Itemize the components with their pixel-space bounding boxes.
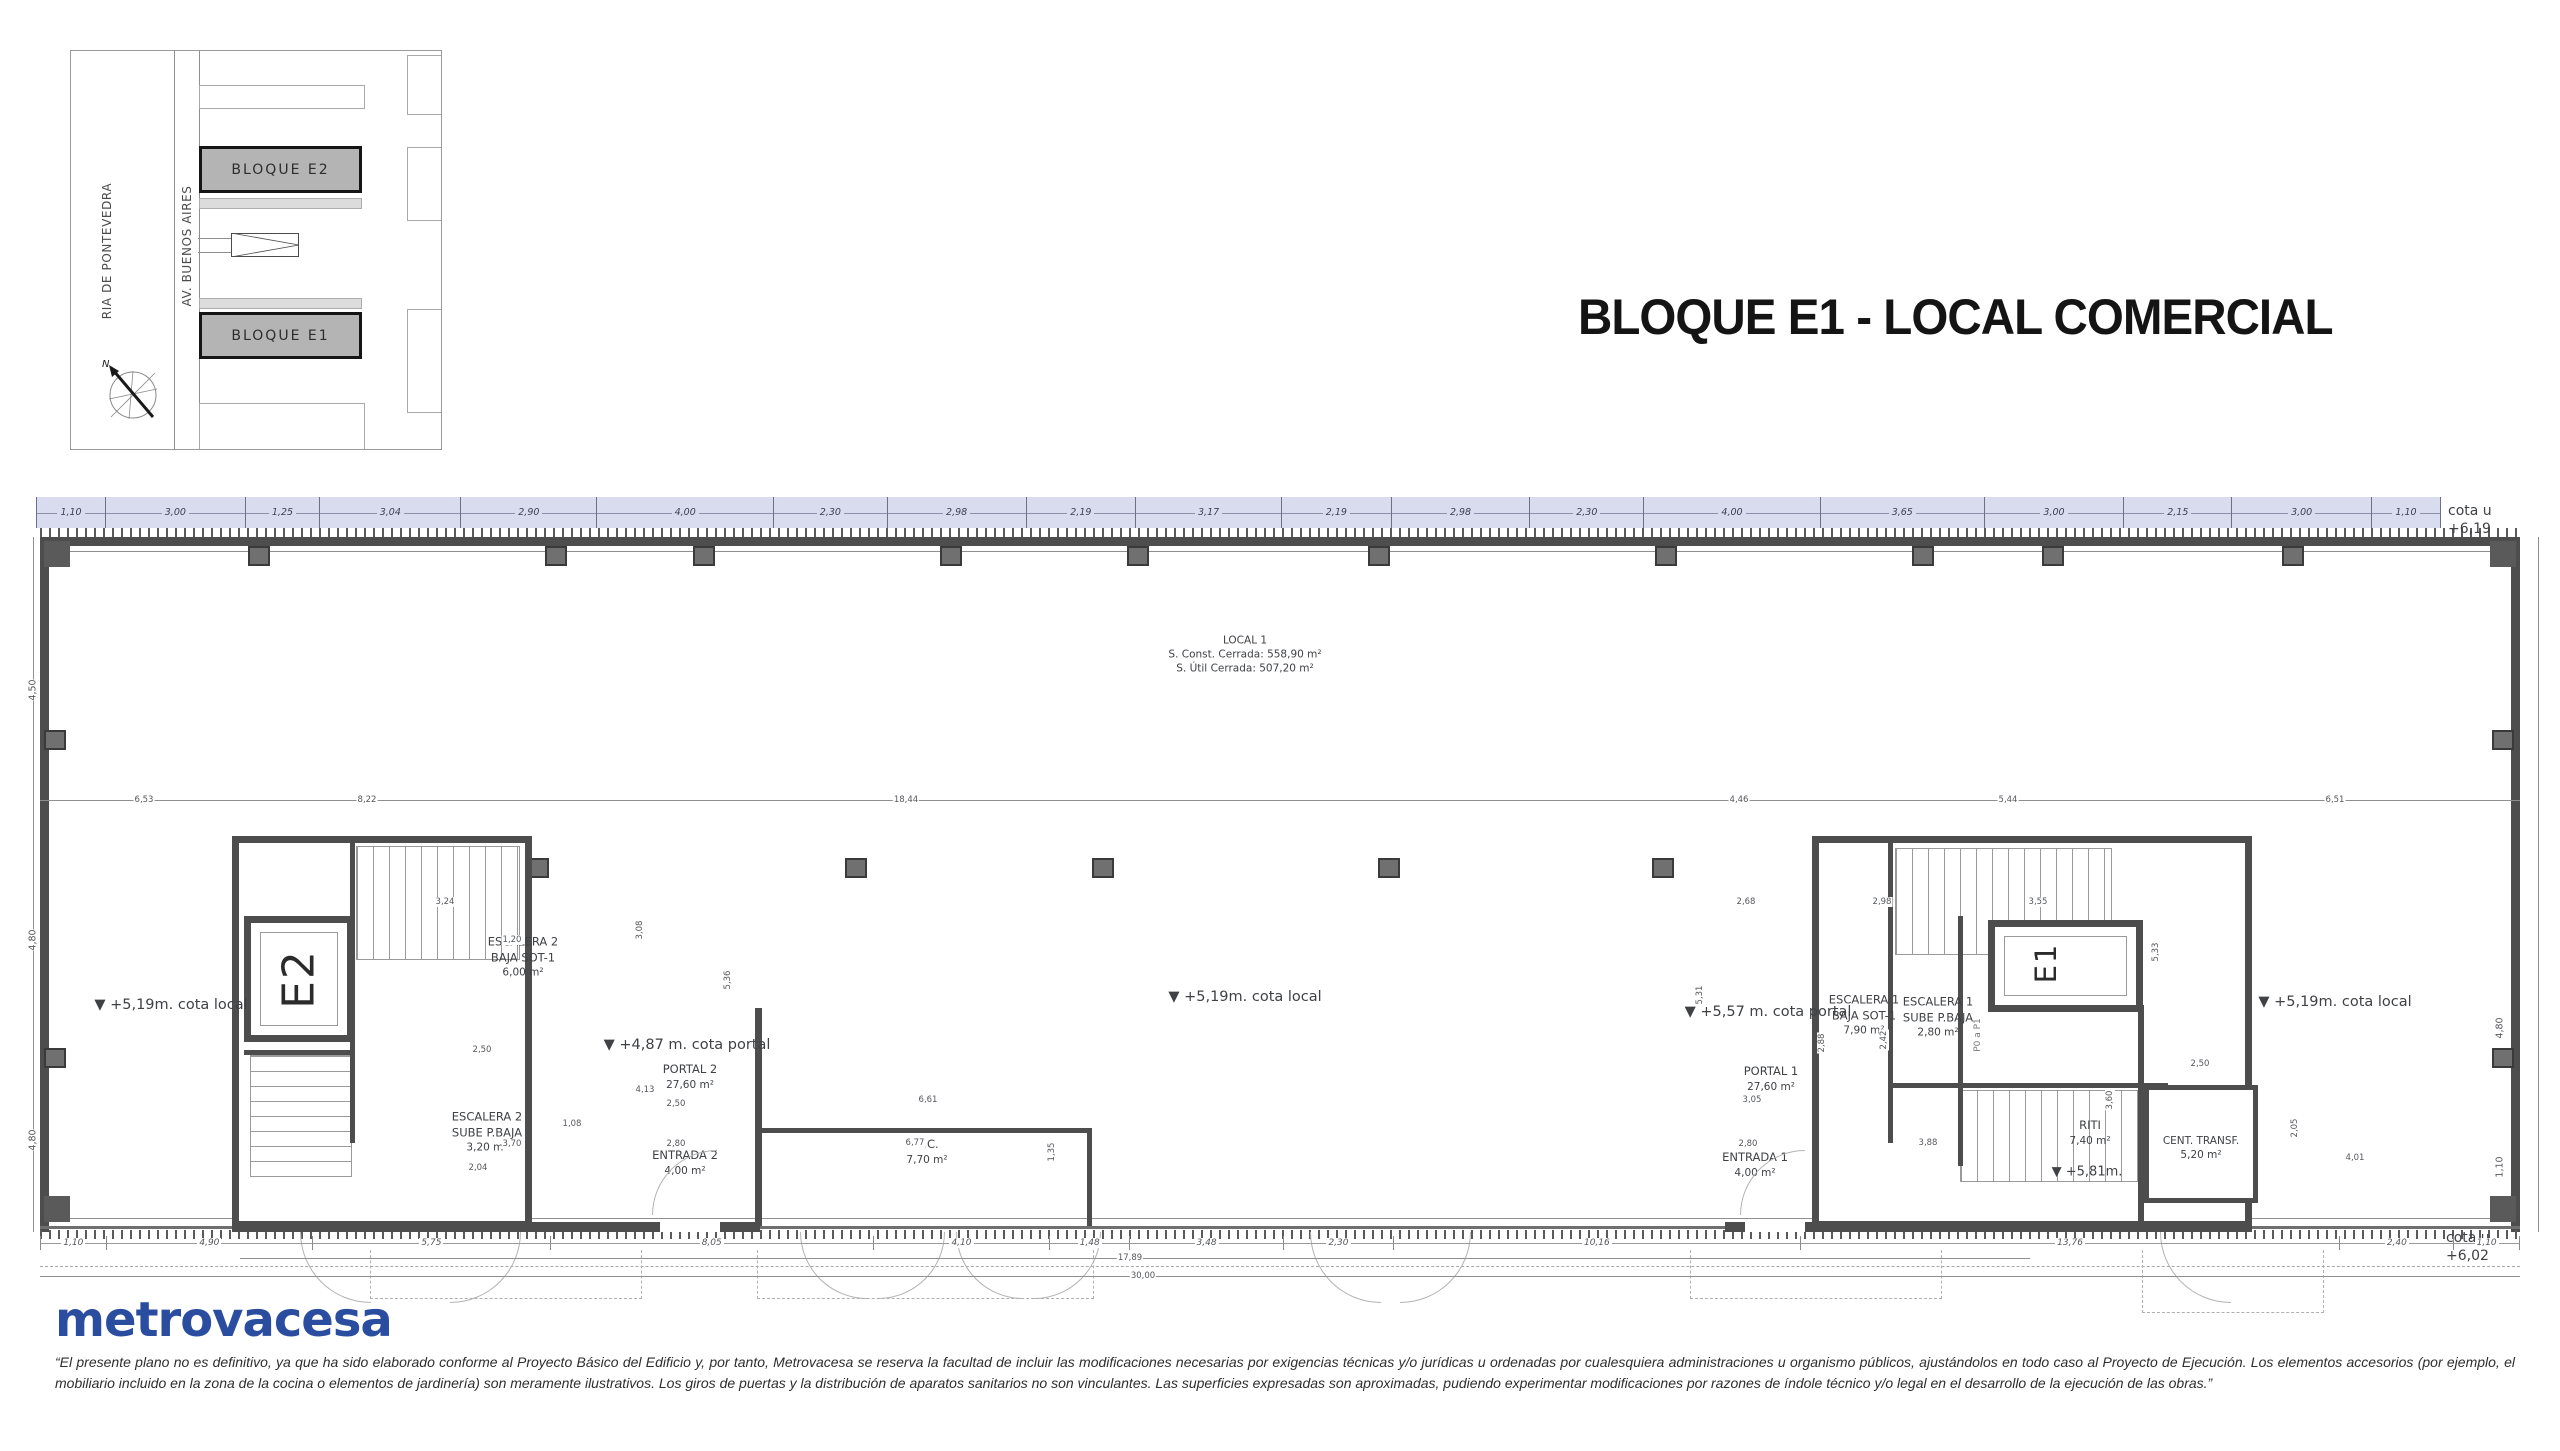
dimension-label: 2,30	[1573, 507, 1600, 518]
dimension-label: 5,44	[1998, 795, 2019, 805]
dimension-label: 2,98	[1447, 507, 1474, 518]
dimension-label: 2,88	[1817, 1033, 1827, 1054]
column	[44, 1196, 70, 1222]
dimension-label: 3,88	[1918, 1138, 1939, 1148]
neighbor-building	[199, 403, 365, 450]
cota-riti: ▼ +5,81m.	[2052, 1165, 2123, 1180]
dimension-label: 6,53	[134, 795, 155, 805]
local-1-label: LOCAL 1 S. Const. Cerrada: 558,90 m² S. …	[1168, 634, 1321, 677]
street-label-buenos-aires: AV. BUENOS AIRES	[180, 185, 194, 306]
column	[2492, 1048, 2514, 1068]
dimension-label: 2,42	[1879, 1030, 1889, 1051]
wall-segment	[244, 1050, 352, 1055]
top-dimension-band: 1,10 3,00 1,25 3,04 2,90 4,00 2,30 2,98 …	[36, 497, 2441, 528]
column	[545, 546, 567, 566]
dimension-label: 6,51	[2325, 795, 2346, 805]
cota-local-center: ▼ +5,19m. cota local	[1168, 989, 1321, 1005]
dimension-label: 13,76	[2055, 1238, 2085, 1248]
dimension-label: 8,05	[700, 1238, 724, 1248]
room-label-escalera1-sube: ESCALERA 1 SUBE P.BAJA 2,80 m²	[1903, 994, 1974, 1039]
stair-note: P0 a P1	[1973, 1018, 1983, 1052]
compass-icon: N	[99, 357, 161, 423]
elevator-car	[2004, 936, 2127, 996]
dimension-label: 10,16	[1582, 1238, 1612, 1248]
dimension-label: 4,00	[672, 507, 699, 518]
dimension-label: 4,80	[28, 1129, 39, 1150]
wall-segment	[40, 537, 2520, 546]
dimension-label: 2,30	[817, 507, 844, 518]
dimension-label: 2,50	[666, 1099, 687, 1109]
dimension-label: 17,89	[1117, 1253, 1143, 1263]
dimension-label: 1,08	[562, 1119, 583, 1129]
dimension-label: 6,61	[918, 1095, 939, 1105]
dimension-label: 2,80	[666, 1139, 687, 1149]
column	[44, 730, 66, 750]
dimension-label: 2,15	[2164, 507, 2191, 518]
wall-hatching	[40, 528, 2520, 537]
dimension-label: 4,10	[949, 1238, 973, 1248]
elevator-1-label: E1	[2029, 943, 2063, 984]
neighbor-building	[407, 55, 442, 115]
dimension-label: 4,90	[197, 1238, 221, 1248]
dimension-label: 4,01	[2345, 1153, 2366, 1163]
elevator-shaft-1	[1988, 920, 2143, 1012]
block-strip	[199, 198, 362, 209]
dimension-label: 2,04	[468, 1163, 489, 1173]
dimension-label: 3,60	[2105, 1090, 2115, 1111]
cota-portal-2: ▼ +4,87 m. cota portal	[604, 1037, 771, 1053]
dimension-label: 3,08	[635, 920, 645, 941]
dimension-label: 8,22	[357, 795, 378, 805]
block-e1-box: BLOQUE E1	[199, 312, 362, 359]
dimension-label: 1,48	[1078, 1238, 1102, 1248]
wall-segment	[40, 537, 49, 1232]
wall-segment	[1958, 916, 1963, 1166]
cota-u-top: cota u +6,19	[2448, 503, 2492, 538]
dimension-label: 2,98	[1872, 897, 1893, 907]
dimension-label: 1,10	[2475, 1238, 2499, 1248]
leader-line	[198, 252, 231, 253]
dimension-label: 2,05	[2290, 1118, 2300, 1139]
dimension-label: 1,10	[57, 507, 84, 518]
dimension-label: 3,04	[377, 507, 404, 518]
dimension-label: 5,75	[419, 1238, 443, 1248]
dimension-line	[2538, 537, 2539, 1232]
dimension-label: 30,00	[1130, 1271, 1156, 1281]
dimension-label: 2,80	[1738, 1139, 1759, 1149]
room-label-cent-transf: CENT. TRANSF. 5,20 m²	[2163, 1134, 2239, 1162]
column	[2282, 546, 2304, 566]
cota-local-right: ▼ +5,19m. cota local	[2258, 994, 2411, 1010]
column	[845, 858, 867, 878]
column	[248, 546, 270, 566]
dimension-label: 18,44	[893, 795, 919, 805]
dimension-label: 4,13	[635, 1085, 656, 1095]
column	[1912, 546, 1934, 566]
block-strip	[199, 298, 362, 309]
column	[940, 546, 962, 566]
dimension-label: 2,50	[2190, 1059, 2211, 1069]
column	[1092, 858, 1114, 878]
column	[44, 541, 70, 567]
dimension-line	[40, 1276, 2520, 1277]
column	[1652, 858, 1674, 878]
column	[693, 546, 715, 566]
dimension-label: 2,90	[515, 507, 542, 518]
dimension-label: 1,10	[61, 1238, 85, 1248]
neighbor-building	[199, 85, 365, 109]
canopy-outline	[2142, 1250, 2324, 1313]
floor-plan-sheet: RIA DE PONTEVEDRA AV. BUENOS AIRES BLOQU…	[0, 0, 2560, 1451]
column	[1127, 546, 1149, 566]
cota-portal-1: ▼ +5,57 m. cota portal	[1685, 1004, 1852, 1020]
dimension-label: 2,50	[472, 1045, 493, 1055]
dimension-label: 3,00	[2040, 507, 2067, 518]
leader-line	[198, 238, 231, 239]
dimension-label: 1,10	[2392, 507, 2419, 518]
dimension-label: 4,46	[1729, 795, 1750, 805]
dimension-label: 3,00	[162, 507, 189, 518]
door-gap	[1745, 1222, 1805, 1232]
dimension-label: 2,30	[1326, 1238, 1350, 1248]
wall-inner-line	[48, 551, 2512, 552]
room-label-riti: RITI 7,40 m²	[2069, 1118, 2110, 1148]
bottom-dimension-row: 1,10 4,90 5,75 8,05 4,10 1,48 3,48 2,30 …	[40, 1236, 2520, 1250]
dimension-label: 5,36	[723, 970, 733, 991]
dimension-line	[33, 537, 34, 1232]
dimension-label: 4,00	[1718, 507, 1745, 518]
column	[1378, 858, 1400, 878]
dimension-label: 1,10	[2495, 1156, 2506, 1177]
dimension-label: 3,48	[1195, 1238, 1219, 1248]
dimension-label: 3,55	[2028, 897, 2049, 907]
dimension-label: 2,68	[1736, 897, 1757, 907]
column	[2490, 1196, 2516, 1222]
dimension-label: 5,33	[2151, 942, 2161, 963]
column	[44, 1048, 66, 1068]
room-label-portal1: PORTAL 1 27,60 m²	[1744, 1064, 1799, 1094]
location-map: RIA DE PONTEVEDRA AV. BUENOS AIRES BLOQU…	[70, 50, 442, 450]
dimension-label: 1,25	[269, 507, 296, 518]
dimension-label: 5,31	[1695, 985, 1705, 1006]
dimension-label: 6,77	[905, 1138, 926, 1148]
stair-treads	[250, 1055, 352, 1177]
neighbor-building	[407, 147, 442, 221]
dimension-label: 4,80	[28, 929, 39, 950]
dimension-label: 3,00	[2288, 507, 2315, 518]
door-gap	[660, 1222, 720, 1232]
dimension-line	[40, 800, 2520, 801]
legal-disclaimer: “El presente plano no es definitivo, ya …	[55, 1352, 2515, 1395]
dimension-label: 2,98	[943, 507, 970, 518]
metrovacesa-logo: metrovacesa	[55, 1292, 392, 1348]
north-label: N	[102, 359, 110, 370]
dimension-label: 3,17	[1195, 507, 1222, 518]
block-e2-box: BLOQUE E2	[199, 146, 362, 193]
dimension-label: 2,19	[1323, 507, 1350, 518]
crossed-box-icon	[231, 233, 299, 257]
column	[2492, 730, 2514, 750]
dimension-label: 2,19	[1067, 507, 1094, 518]
wall-segment	[1888, 1083, 2168, 1088]
wall-segment	[2511, 537, 2520, 1232]
dimension-label: 1,20	[502, 935, 523, 945]
dimension-label: 4,50	[28, 679, 39, 700]
column	[1655, 546, 1677, 566]
dimension-label: 2,40	[2385, 1238, 2409, 1248]
room-label-escalera2-baja: ESCALERA 2 BAJA SOT-1 6,00 m²	[488, 934, 559, 979]
dimension-label: 3,24	[435, 897, 456, 907]
dimension-label: 3,05	[1742, 1095, 1763, 1105]
cota-local-left: ▼ +5,19m. cota local	[94, 997, 247, 1013]
dimension-label: 4,80	[2495, 1017, 2506, 1038]
neighbor-building	[407, 309, 442, 413]
column	[2042, 546, 2064, 566]
street-label-ria: RIA DE PONTEVEDRA	[100, 183, 114, 319]
elevator-2-label: E2	[274, 949, 325, 1009]
column	[1368, 546, 1390, 566]
page-title: BLOQUE E1 - LOCAL COMERCIAL	[1578, 288, 2433, 346]
column	[2490, 541, 2516, 567]
dimension-label: 3,70	[502, 1139, 523, 1149]
room-label-portal2: PORTAL 2 27,60 m²	[663, 1062, 718, 1092]
dimension-label: 1,35	[1047, 1142, 1057, 1163]
dimension-label: 3,65	[1889, 507, 1916, 518]
